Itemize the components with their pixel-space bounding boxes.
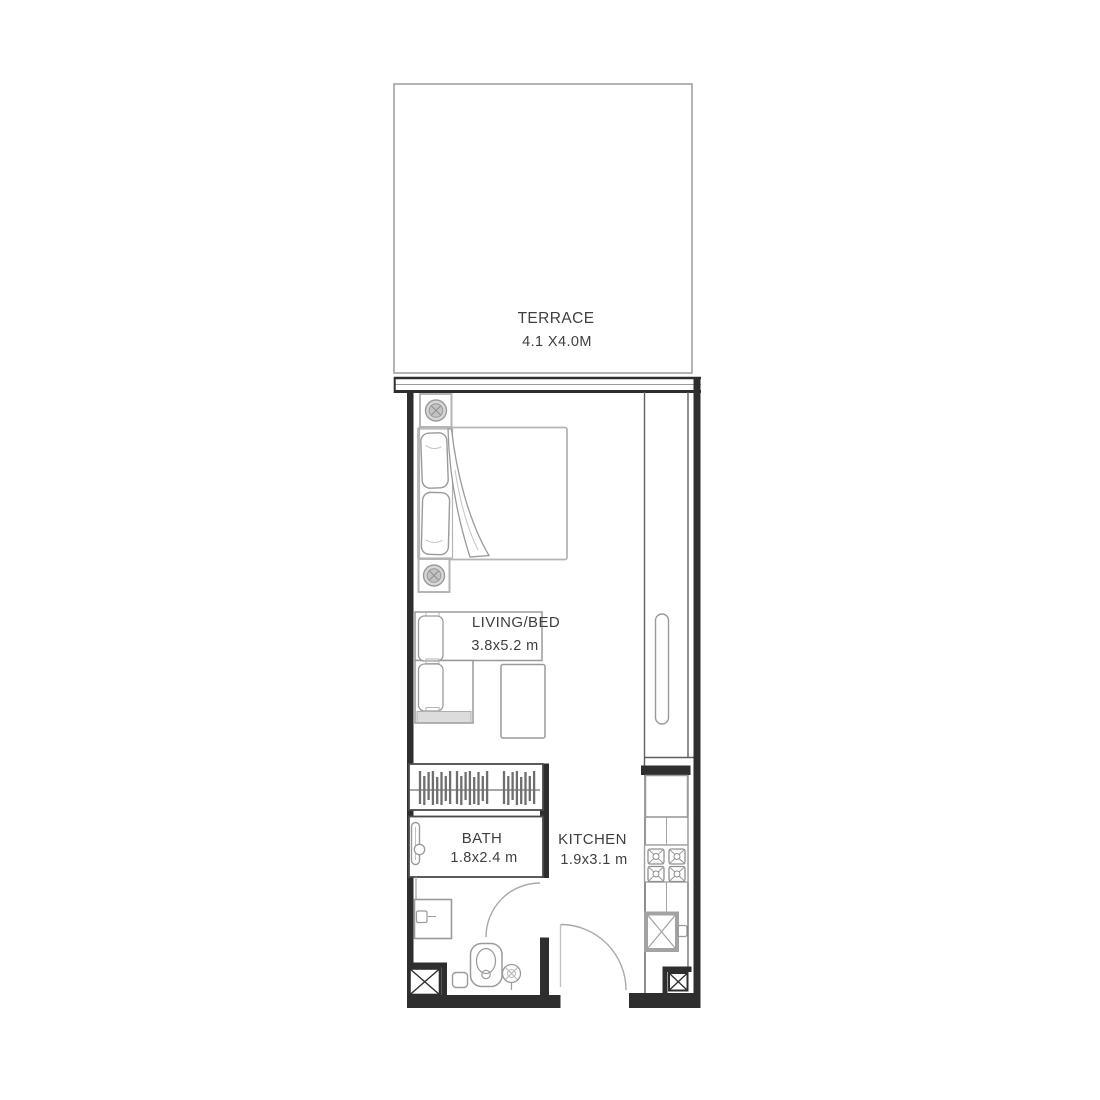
stove-burner-icon bbox=[669, 867, 685, 882]
bath-label: BATH bbox=[462, 830, 503, 847]
terrace-label: TERRACE bbox=[518, 310, 595, 327]
shaft-cross-left-icon bbox=[410, 969, 441, 996]
wall-bath-right-lower bbox=[540, 938, 549, 998]
floor-plan: TERRACE 4.1 X4.0M bbox=[0, 0, 1100, 1100]
terrace: TERRACE 4.1 X4.0M bbox=[394, 84, 692, 373]
entry-door-swing bbox=[561, 925, 627, 991]
stove-burner-icon bbox=[669, 849, 685, 864]
wall-bottom-left bbox=[407, 995, 561, 1008]
floor-plan-canvas: TERRACE 4.1 X4.0M bbox=[0, 0, 1100, 1100]
bath-door-swing bbox=[486, 883, 540, 937]
terrace-dimensions: 4.1 X4.0M bbox=[522, 334, 592, 350]
wall-right bbox=[694, 377, 701, 1008]
entry-door bbox=[561, 925, 627, 991]
lamp-icon bbox=[426, 400, 447, 421]
kitchen-dimensions: 1.9x3.1 m bbox=[560, 852, 627, 868]
wall-bottom-right bbox=[629, 993, 701, 1008]
sofa-cushion bbox=[419, 664, 444, 711]
terrace-outline bbox=[394, 84, 692, 373]
wall-left bbox=[407, 390, 414, 1008]
living-bed-label: LIVING/BED bbox=[472, 614, 560, 631]
lamp-icon bbox=[424, 565, 445, 586]
shower-knob-icon bbox=[414, 844, 424, 854]
bath-dimensions: 1.8x2.4 m bbox=[450, 850, 517, 866]
terrace-window-band bbox=[394, 377, 701, 393]
kitchen-label: KITCHEN bbox=[558, 831, 627, 848]
kitchen: KITCHEN 1.9x3.1 m bbox=[558, 776, 688, 991]
kitchen-sink bbox=[646, 914, 687, 951]
sofa-cushion bbox=[419, 616, 444, 661]
pillow bbox=[421, 433, 449, 489]
wall-kitchen-top bbox=[641, 766, 691, 776]
stove-burner-icon bbox=[648, 867, 664, 882]
stove-burner-icon bbox=[648, 849, 664, 864]
round-drain-icon bbox=[503, 965, 521, 991]
living-bed-dimensions: 3.8x5.2 m bbox=[471, 638, 538, 654]
tall-panel bbox=[656, 614, 669, 724]
wardrobe bbox=[409, 764, 543, 810]
wall-shaft-right bbox=[442, 963, 448, 996]
floor-drain-icon bbox=[453, 973, 468, 988]
pillow bbox=[421, 492, 450, 555]
toilet bbox=[471, 944, 503, 987]
coffee-table bbox=[501, 665, 545, 739]
shaft-cross-right-icon bbox=[669, 973, 688, 991]
fridge bbox=[646, 776, 688, 818]
wall-niche-left bbox=[663, 967, 668, 994]
sofa-armrest bbox=[417, 712, 471, 723]
bedroom-furniture bbox=[418, 394, 567, 592]
wall-shaft-top bbox=[407, 963, 447, 968]
washbasin bbox=[415, 900, 452, 939]
hob bbox=[645, 845, 689, 882]
